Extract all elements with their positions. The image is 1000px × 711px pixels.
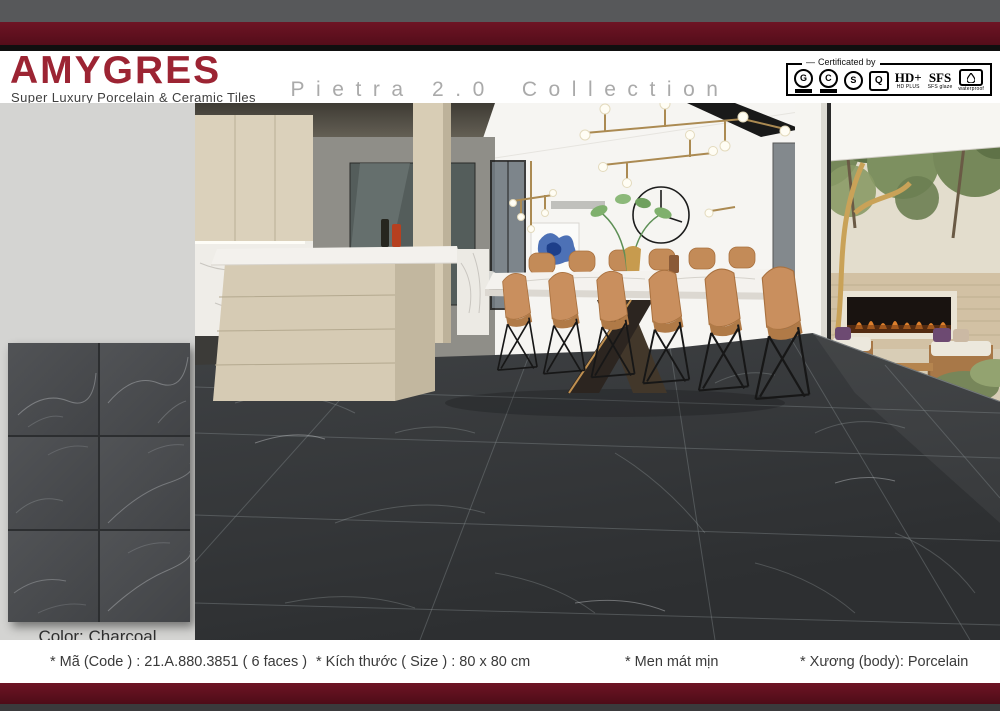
tile-cell xyxy=(8,437,98,529)
collection-title-main: Pietra 2.0 xyxy=(290,78,495,101)
interior-scene xyxy=(195,103,1000,640)
s-award-icon: S xyxy=(844,71,863,90)
iso-cert-icon: C xyxy=(819,69,838,93)
sfs-glaze-badge: SFSSFS glaze xyxy=(928,71,953,90)
waterproof-icon: waterproof xyxy=(958,69,984,92)
collection-title-sub: Collection xyxy=(522,78,730,101)
tile-cell xyxy=(100,531,190,622)
dining-table-top xyxy=(485,269,787,293)
tile-swatch-graphic xyxy=(8,343,190,622)
spec-glaze: * Men mát mịn xyxy=(625,640,718,683)
tile-cell xyxy=(100,343,190,435)
marble-waterfall xyxy=(457,249,489,335)
header: AMYGRES Super Luxury Porcelain & Ceramic… xyxy=(0,51,1000,103)
brand-logo: AMYGRES xyxy=(10,51,221,91)
table-jar xyxy=(669,255,679,273)
iso-cert-icon: G xyxy=(794,69,813,93)
spec-body: * Xương (body): Porcelain xyxy=(800,640,968,683)
tile-swatch xyxy=(8,343,190,622)
top-maroon-bar xyxy=(0,22,1000,45)
left-rail: Color: Charcoal xyxy=(0,103,195,640)
certification-box: Certificated by G C S Q HD+HD PLUS SFSSF… xyxy=(786,63,992,96)
spec-size: * Kích thước ( Size ) : 80 x 80 cm xyxy=(316,640,530,683)
tile-cell xyxy=(8,531,98,622)
quacert-icon: Q xyxy=(869,71,889,91)
bottom-dark-bar xyxy=(0,704,1000,711)
furniture-shadow xyxy=(445,389,785,417)
tile-cell xyxy=(8,343,98,435)
certified-by-label: Certificated by xyxy=(802,57,880,67)
bottom-maroon-bar xyxy=(0,683,1000,704)
top-gray-bar xyxy=(0,0,1000,22)
bottle xyxy=(392,224,401,247)
collection-title: Pietra 2.0Collection xyxy=(270,78,750,102)
glass-wall-frame xyxy=(827,103,831,343)
bottle xyxy=(381,219,389,247)
product-photo xyxy=(195,103,1000,640)
spec-code: * Mã (Code ) : 21.A.880.3851 ( 6 faces ) xyxy=(50,640,307,683)
hd-plus-badge: HD+HD PLUS xyxy=(895,71,922,90)
island-countertop xyxy=(211,246,461,265)
tile-cell xyxy=(100,437,190,529)
upper-cabinets xyxy=(195,115,313,241)
